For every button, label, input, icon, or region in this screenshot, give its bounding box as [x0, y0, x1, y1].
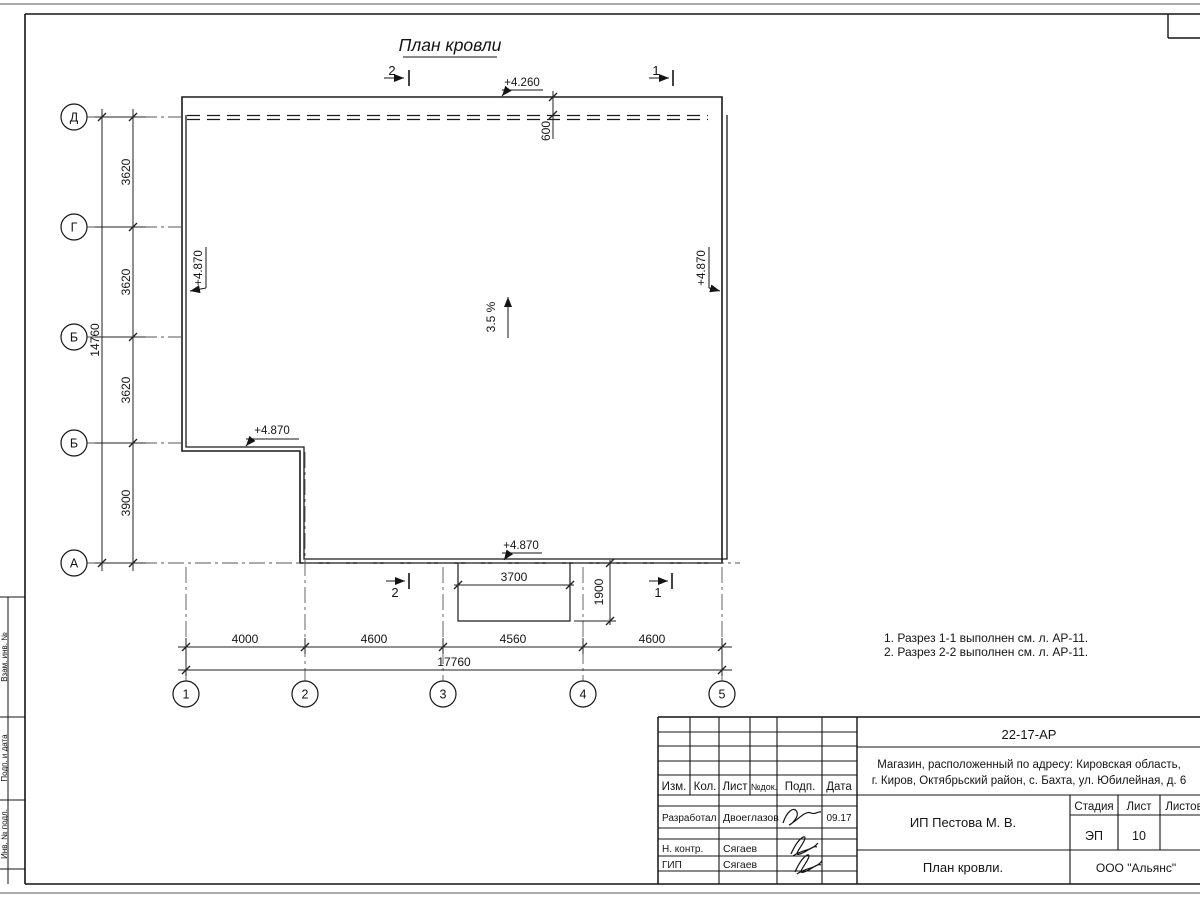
elev-right: +4.870	[696, 250, 708, 286]
stage-col-header: Стадия	[1074, 801, 1113, 813]
address-line1: Магазин, расположенный по адресу: Кировс…	[877, 759, 1181, 771]
row2-name: Сягаев	[723, 843, 758, 855]
dim-overhang: 600	[539, 121, 553, 141]
axis-col-2: 2	[302, 688, 309, 702]
elev-bottom: +4.870	[503, 540, 539, 552]
section-1-bottom: 1	[654, 585, 661, 600]
elev-left: +4.870	[193, 250, 205, 286]
section-1-top: 1	[652, 63, 659, 78]
notes: 1. Разрез 1-1 выполнен см. л. АР-11. 2. …	[884, 631, 1088, 659]
row2-role: Н. контр.	[662, 844, 703, 855]
strip-label-inv: Инв. № подл.	[0, 809, 9, 859]
dim-left-total: 14760	[88, 323, 102, 357]
roof-inner-contour	[186, 115, 727, 559]
sheet-number: 10	[1132, 829, 1146, 843]
axis-col-5: 5	[719, 688, 726, 702]
strip-label-vzam: Взам. инв. №	[0, 632, 9, 682]
elevation-marks: +4.260 +4.870 +4.870 +4.870 +4.870	[190, 77, 720, 560]
axis-bubbles	[61, 104, 735, 707]
dim-bottom-1: 4000	[232, 632, 259, 646]
axis-row-b2: Б	[70, 437, 78, 451]
roof-outer-contour	[182, 97, 722, 563]
axis-col-1: 1	[183, 688, 190, 702]
dimension-labels: 4000 4600 4560 4600 17760 3620 3620 3620…	[88, 121, 666, 669]
slope-label: 3.5 %	[484, 301, 498, 332]
dim-bottom-2: 4600	[361, 632, 388, 646]
row1-date: 09.17	[826, 813, 851, 824]
dim-left-1: 3620	[119, 158, 133, 185]
doc-code: 22-17-АР	[1002, 727, 1057, 742]
section-2-top: 2	[388, 63, 395, 78]
plan-title: План кровли	[399, 35, 502, 55]
row3-name: Сягаев	[723, 859, 758, 871]
roof-outline	[182, 97, 727, 621]
col-kol: Кол.	[694, 781, 717, 793]
dim-left-3: 3620	[119, 376, 133, 403]
client-name: ИП Пестова М. В.	[910, 815, 1016, 830]
note-2: 2. Разрез 2-2 выполнен см. л. АР-11.	[884, 645, 1088, 659]
dim-left-2: 3620	[119, 268, 133, 295]
listov-col-header: Листов	[1165, 801, 1200, 813]
plan-title-group: План кровли	[399, 35, 502, 57]
section-marks: 2 1 2 1	[384, 63, 673, 600]
frame-left-strip: Взам. инв. № Подп. и дата Инв. № подл.	[0, 597, 25, 884]
axis-row-g: Г	[71, 221, 78, 235]
titleblock: 22-17-АР Магазин, расположенный по адрес…	[658, 717, 1200, 884]
strip-label-podp: Подп. и дата	[0, 734, 9, 782]
row1-name: Двоеглазов	[723, 812, 779, 824]
elev-step: +4.870	[254, 425, 290, 437]
col-data: Дата	[826, 781, 852, 793]
dim-canopy-depth: 1900	[592, 578, 606, 605]
dim-bottom-4: 4600	[639, 632, 666, 646]
note-1: 1. Разрез 1-1 выполнен см. л. АР-11.	[884, 631, 1088, 645]
company-name: ООО "Альянс"	[1096, 861, 1176, 875]
axis-row-a: А	[70, 557, 79, 571]
slope-annotation: 3.5 %	[484, 297, 508, 338]
signatures	[783, 809, 822, 874]
dim-bottom-total: 17760	[437, 655, 471, 669]
section-2-bottom: 2	[391, 585, 398, 600]
dim-left-4: 3900	[119, 489, 133, 516]
axis-col-4: 4	[580, 688, 587, 702]
titleblock-texts: 22-17-АР Магазин, расположенный по адрес…	[662, 727, 1200, 875]
drawing-title: План кровли.	[923, 860, 1003, 875]
col-podp: Подп.	[785, 781, 816, 793]
list-col-header: Лист	[1127, 801, 1153, 813]
axis-row-b1: Б	[70, 331, 78, 345]
address-line2: г. Киров, Октябрьский район, с. Бахта, у…	[872, 775, 1187, 787]
roof-hidden-edge	[187, 116, 708, 120]
axis-bubble-labels: Д Г Б Б А 1 2 3 4 5	[70, 111, 726, 702]
dimension-lines	[95, 91, 732, 676]
stage-value: ЭП	[1085, 829, 1103, 843]
signature-developer	[783, 809, 821, 825]
dim-canopy-width: 3700	[501, 570, 528, 584]
row3-role: ГИП	[662, 860, 682, 871]
elev-top: +4.260	[504, 77, 540, 89]
axis-col-3: 3	[440, 688, 447, 702]
col-list: Лист	[723, 781, 749, 793]
axis-row-d: Д	[70, 111, 79, 125]
row1-role: Разработал	[662, 812, 717, 824]
axis-lines	[87, 117, 740, 681]
roof-plan-drawing: Взам. инв. № Подп. и дата Инв. № подл. П…	[0, 0, 1200, 900]
corner-stamp-box	[1168, 14, 1200, 38]
signature-ncontrol	[791, 837, 818, 856]
dim-bottom-3: 4560	[500, 632, 527, 646]
dimension-ticks	[98, 93, 726, 674]
col-izm: Изм.	[662, 781, 687, 793]
col-ndok: №док.	[751, 782, 777, 792]
